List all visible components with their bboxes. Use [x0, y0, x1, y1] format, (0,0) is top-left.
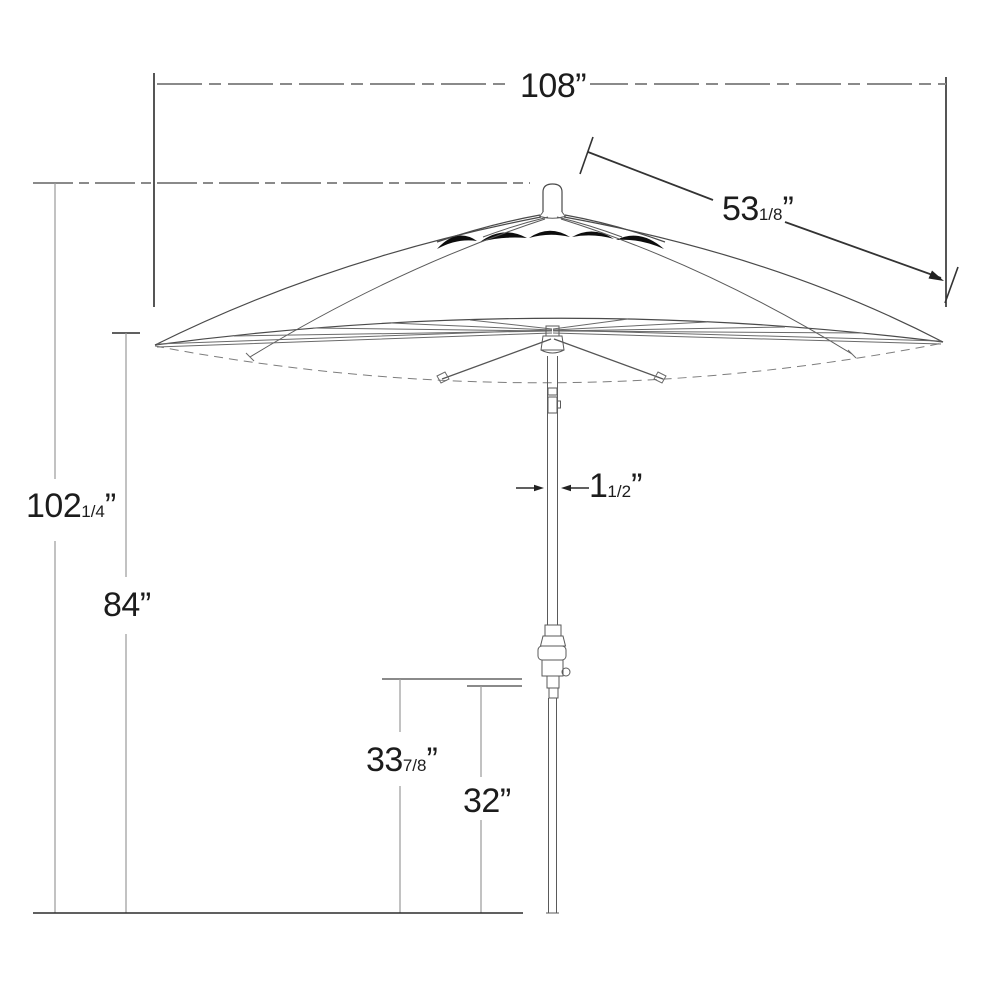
dim-label-crank-top: 337/8”: [366, 741, 437, 779]
dim-crank-bottom-height: 32”: [463, 686, 522, 913]
umbrella-pole-lower: [546, 698, 559, 913]
dim-label-crank-bottom: 32”: [463, 782, 511, 820]
dim-label-pole-diameter: 11/2”: [589, 467, 642, 505]
umbrella-canopy: [155, 217, 943, 383]
crank-assembly: [538, 625, 570, 698]
diagram-page: 108” 531/8” 1021/4” 84” 11/2” 337/8”: [0, 0, 990, 990]
dim-label-hub-height: 84”: [103, 586, 151, 624]
dim-label-rib-length: 531/8”: [722, 190, 793, 228]
dim-rib-length: 531/8”: [580, 137, 958, 303]
dim-label-total-height: 1021/4”: [26, 487, 116, 525]
dim-hub-height: 84”: [103, 333, 151, 913]
canopy-ribs: [157, 319, 941, 383]
dim-total-height: 1021/4”: [26, 183, 530, 913]
dim-label-canopy-width: 108”: [520, 67, 586, 105]
umbrella-finial: [540, 184, 566, 218]
umbrella-dimension-drawing: 108” 531/8” 1021/4” 84” 11/2” 337/8”: [0, 0, 990, 990]
tilt-joint: [548, 388, 561, 413]
dim-canopy-width: 108”: [154, 64, 946, 307]
dim-pole-diameter: 11/2”: [516, 467, 642, 505]
umbrella-drawing: [155, 184, 943, 913]
umbrella-pole-upper: [548, 356, 561, 625]
